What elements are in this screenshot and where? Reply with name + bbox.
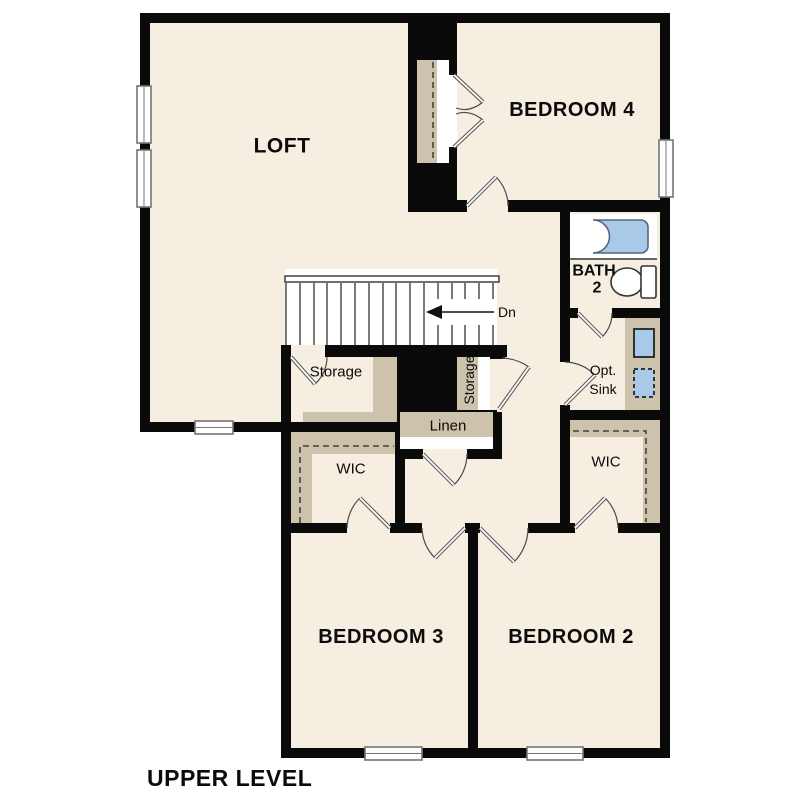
bedroom3-label: BEDROOM 3 bbox=[318, 626, 444, 648]
floorplan-svg: LOFT BEDROOM 4 BATH 2 Dn Storage Storage… bbox=[0, 0, 810, 810]
plan-title: UPPER LEVEL bbox=[147, 765, 312, 791]
storage-room-label: Storage bbox=[310, 364, 363, 381]
storage-closet-label: Storage bbox=[461, 355, 477, 404]
floorplan-canvas: LOFT BEDROOM 4 BATH 2 Dn Storage Storage… bbox=[0, 0, 810, 810]
optional-sink-basin bbox=[634, 369, 654, 397]
bath2-label-line1: BATH bbox=[572, 263, 615, 280]
wic-right-label: WIC bbox=[591, 454, 620, 471]
stairs-dn-label: Dn bbox=[498, 304, 516, 320]
bedroom4-label: BEDROOM 4 bbox=[509, 99, 635, 121]
wic-left-label: WIC bbox=[336, 461, 365, 478]
sink-basin bbox=[634, 329, 654, 357]
stair-railing bbox=[285, 276, 499, 282]
wic-left-shelf-top bbox=[312, 432, 395, 454]
bath2-label-line2: 2 bbox=[593, 280, 602, 297]
staircase bbox=[285, 269, 499, 345]
storage-room-shelf-vertical bbox=[373, 357, 397, 422]
opt-sink-label-line2: Sink bbox=[589, 381, 617, 397]
storage-closet-floor bbox=[478, 357, 490, 410]
opt-sink-label-line1: Opt. bbox=[590, 362, 616, 378]
toilet bbox=[611, 266, 656, 298]
linen-closet-front bbox=[400, 437, 493, 449]
bedroom2-label: BEDROOM 2 bbox=[508, 626, 634, 648]
bedroom4-closet-shelf bbox=[417, 60, 437, 163]
wic-right-shelf-top bbox=[570, 420, 660, 437]
loft-label: LOFT bbox=[254, 135, 311, 158]
storage-room-shelf-horizontal bbox=[303, 412, 373, 422]
linen-label: Linen bbox=[430, 418, 467, 435]
